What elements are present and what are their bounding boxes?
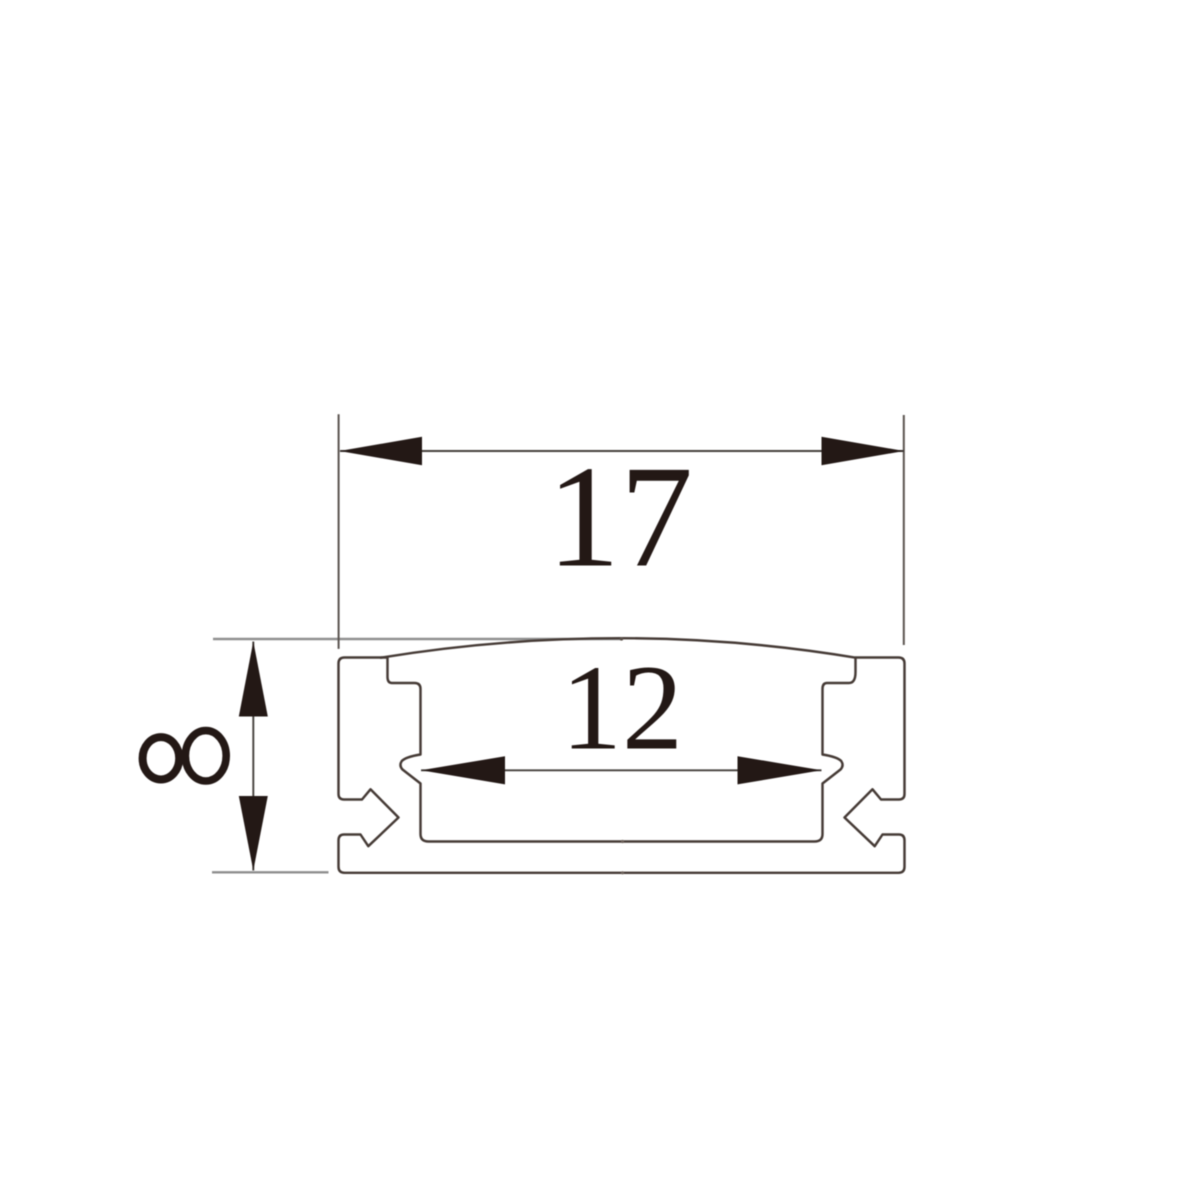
svg-text:17: 17: [547, 436, 693, 598]
svg-text:12: 12: [561, 641, 683, 776]
